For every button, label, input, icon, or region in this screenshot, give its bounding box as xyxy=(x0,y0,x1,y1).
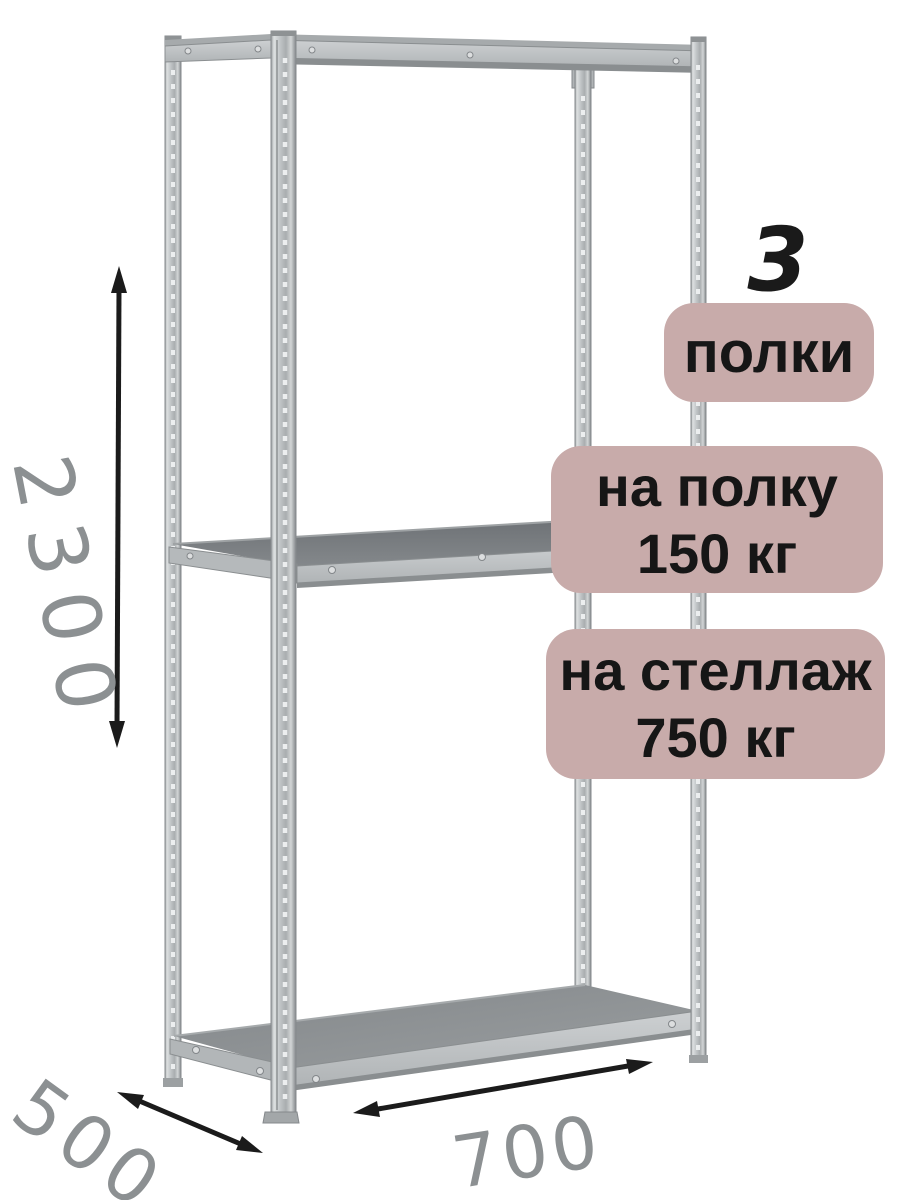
shelf-count-number: 3 xyxy=(747,209,808,312)
rack-load-badge: на стеллаж 750 кг xyxy=(546,629,885,779)
shelving-rack-illustration xyxy=(0,0,900,1200)
product-image: 2300 500 700 3 полки на полку 150 кг на … xyxy=(0,0,900,1200)
rack-load-badge-line1: на стеллаж xyxy=(546,637,885,704)
shelf-load-badge: на полку 150 кг xyxy=(551,446,883,593)
top-shelf xyxy=(165,34,706,73)
shelf-load-badge-line1: на полку xyxy=(551,453,883,520)
shelf-count-badge: полки xyxy=(664,303,874,402)
rack-load-badge-line2: 750 кг xyxy=(546,704,885,771)
shelf-count-badge-label: полки xyxy=(664,303,874,402)
bottom-shelf xyxy=(170,985,698,1091)
shelf-load-badge-line2: 150 кг xyxy=(551,520,883,587)
